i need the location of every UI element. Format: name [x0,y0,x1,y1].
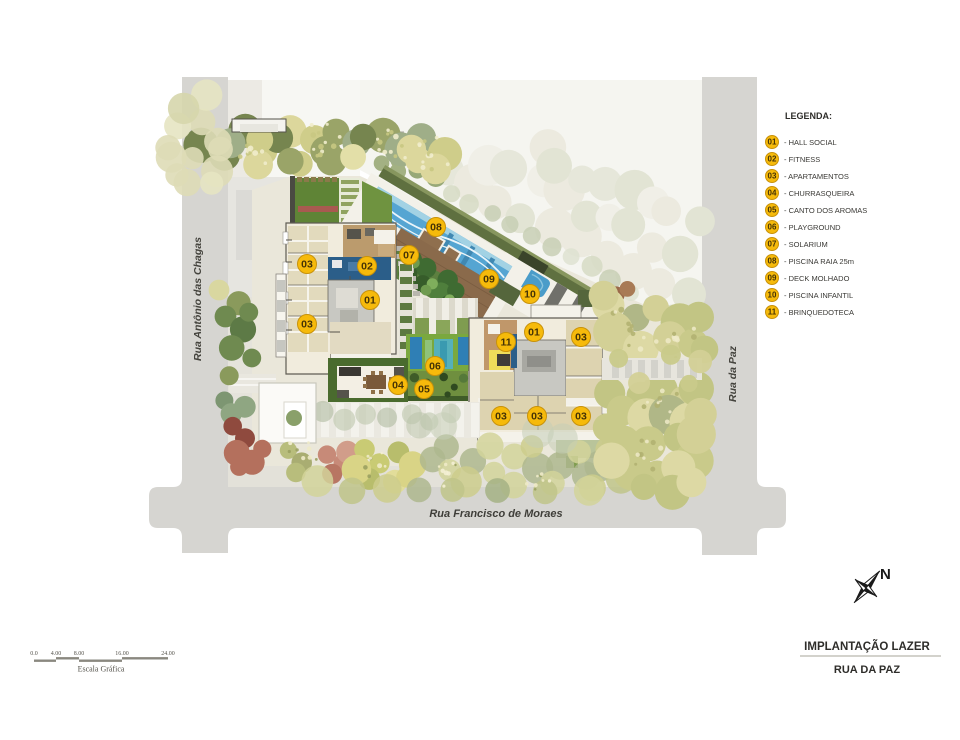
svg-text:07: 07 [403,249,415,261]
svg-text:Escala Gráfica: Escala Gráfica [78,665,125,674]
svg-text:RUA DA PAZ: RUA DA PAZ [834,664,900,676]
svg-text:Rua Antônio das Chagas: Rua Antônio das Chagas [192,237,204,361]
svg-text:LEGENDA:: LEGENDA: [785,111,832,121]
svg-text:- SOLARIUM: - SOLARIUM [784,240,828,249]
svg-text:24.00: 24.00 [161,651,175,657]
svg-text:11: 11 [768,308,777,317]
svg-text:04: 04 [392,379,404,391]
svg-text:03: 03 [495,410,507,422]
svg-text:- CANTO DOS AROMAS: - CANTO DOS AROMAS [784,206,867,215]
svg-text:06: 06 [768,223,777,232]
svg-text:03: 03 [575,410,587,422]
svg-text:8.00: 8.00 [74,651,85,657]
svg-text:03: 03 [531,410,543,422]
svg-text:03: 03 [768,172,777,181]
svg-text:4.00: 4.00 [51,651,62,657]
svg-text:05: 05 [418,383,430,395]
svg-text:10: 10 [768,291,777,300]
svg-text:- DECK MOLHADO: - DECK MOLHADO [784,274,850,283]
svg-text:- FITNESS: - FITNESS [784,155,820,164]
svg-text:03: 03 [575,331,587,343]
svg-text:09: 09 [768,274,777,283]
svg-text:- PISCINA INFANTIL: - PISCINA INFANTIL [784,291,853,300]
svg-text:06: 06 [429,360,441,372]
svg-text:01: 01 [528,326,540,338]
svg-text:02: 02 [768,155,777,164]
svg-text:01: 01 [768,138,777,147]
svg-text:05: 05 [768,206,777,215]
svg-text:08: 08 [768,257,777,266]
svg-text:- CHURRASQUEIRA: - CHURRASQUEIRA [784,189,854,198]
svg-text:Rua Francisco de Moraes: Rua Francisco de Moraes [429,508,562,520]
svg-text:Rua da Paz: Rua da Paz [727,345,739,402]
svg-text:08: 08 [430,221,442,233]
svg-text:03: 03 [301,258,313,270]
svg-text:04: 04 [768,189,777,198]
svg-text:IMPLANTAÇÃO LAZER: IMPLANTAÇÃO LAZER [804,640,930,653]
svg-text:07: 07 [768,240,777,249]
svg-text:11: 11 [500,336,511,348]
svg-text:N: N [880,566,891,583]
svg-text:02: 02 [361,260,373,272]
svg-text:09: 09 [483,273,495,285]
svg-text:- PLAYGROUND: - PLAYGROUND [784,223,841,232]
svg-text:- APARTAMENTOS: - APARTAMENTOS [784,172,849,181]
svg-text:03: 03 [301,318,313,330]
svg-text:- PISCINA RAIA 25m: - PISCINA RAIA 25m [784,257,854,266]
svg-text:0.0: 0.0 [30,651,38,657]
svg-text:- BRINQUEDOTECA: - BRINQUEDOTECA [784,308,854,317]
svg-text:01: 01 [364,294,376,306]
svg-text:16.00: 16.00 [115,651,129,657]
svg-text:- HALL SOCIAL: - HALL SOCIAL [784,138,837,147]
svg-text:10: 10 [524,288,536,300]
